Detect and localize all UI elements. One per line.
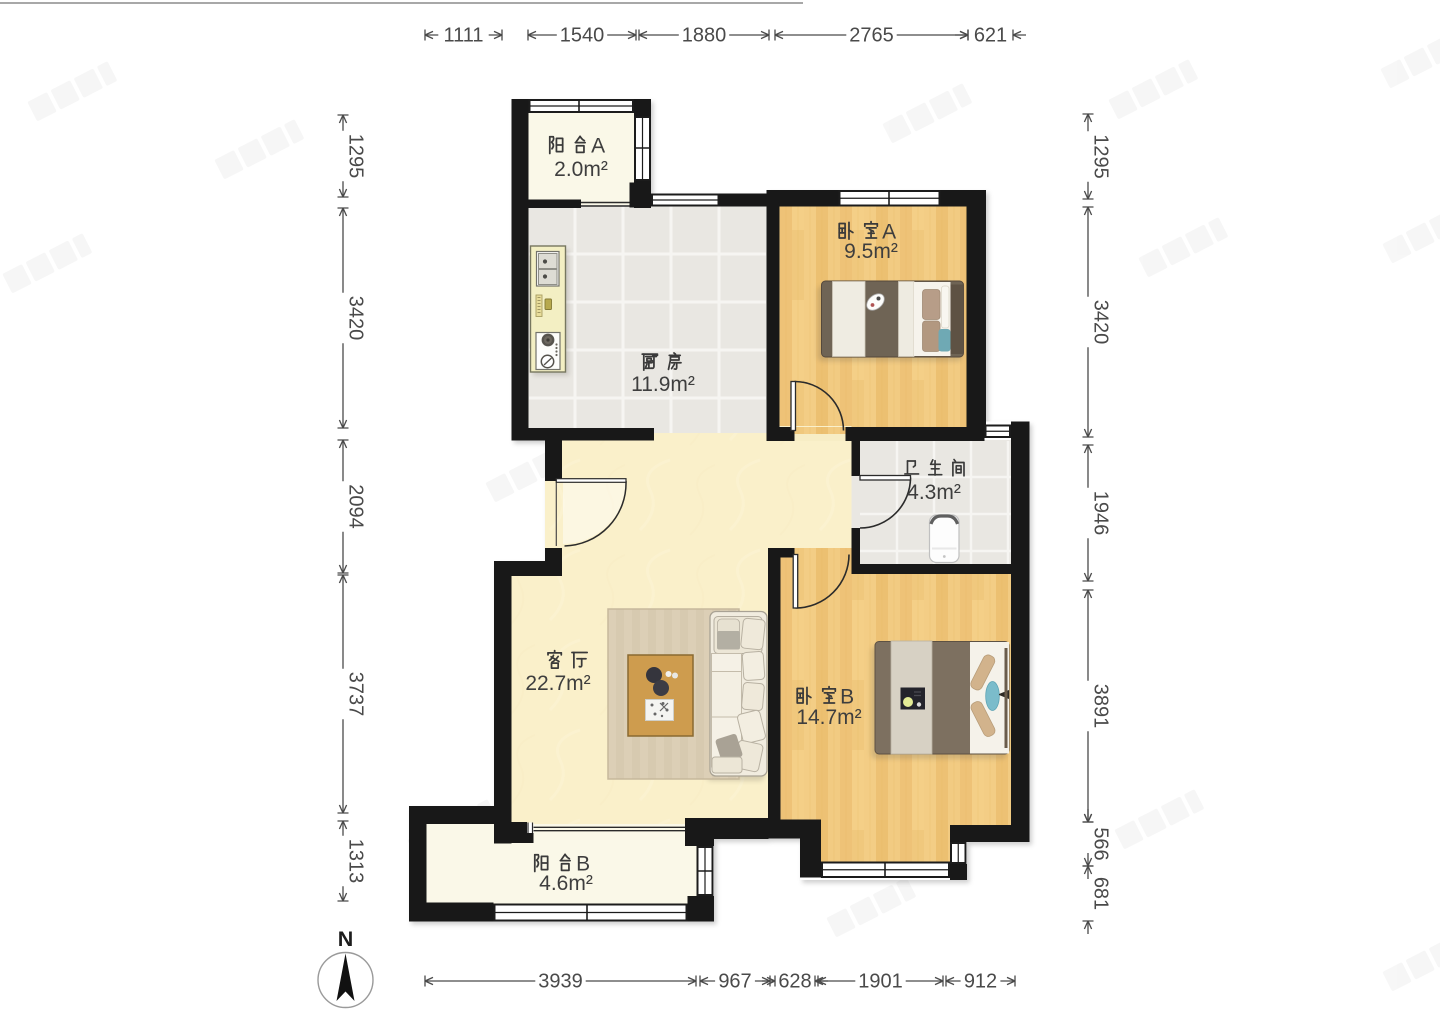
svg-text:1295: 1295	[345, 134, 367, 179]
svg-text:681: 681	[1090, 877, 1112, 910]
svg-text:22.7m²: 22.7m²	[525, 672, 590, 695]
svg-text:967: 967	[718, 971, 751, 993]
svg-text:1946: 1946	[1090, 491, 1112, 536]
svg-text:A: A	[591, 135, 605, 158]
svg-text:2765: 2765	[849, 25, 894, 47]
svg-text:3939: 3939	[538, 971, 583, 993]
svg-text:1901: 1901	[858, 971, 903, 993]
svg-text:11.9m²: 11.9m²	[631, 373, 695, 396]
svg-text:2.0m²: 2.0m²	[554, 158, 608, 181]
svg-text:1880: 1880	[682, 25, 727, 47]
svg-text:14.7m²: 14.7m²	[796, 706, 861, 729]
svg-text:1295: 1295	[1090, 134, 1112, 179]
svg-text:3420: 3420	[345, 296, 367, 341]
svg-text:912: 912	[964, 971, 997, 993]
svg-text:566: 566	[1090, 827, 1112, 860]
svg-text:1540: 1540	[560, 25, 605, 47]
svg-text:4.6m²: 4.6m²	[539, 872, 593, 895]
svg-text:2094: 2094	[345, 484, 367, 529]
svg-text:N: N	[338, 927, 354, 951]
svg-text:3737: 3737	[345, 672, 367, 717]
svg-text:4.3m²: 4.3m²	[907, 481, 961, 504]
svg-text:1111: 1111	[443, 25, 483, 47]
svg-text:1313: 1313	[345, 839, 367, 884]
svg-text:9.5m²: 9.5m²	[844, 240, 898, 263]
svg-text:3420: 3420	[1090, 300, 1112, 345]
svg-text:621: 621	[974, 25, 1007, 47]
svg-text:628: 628	[778, 971, 811, 993]
svg-text:3891: 3891	[1090, 684, 1112, 729]
